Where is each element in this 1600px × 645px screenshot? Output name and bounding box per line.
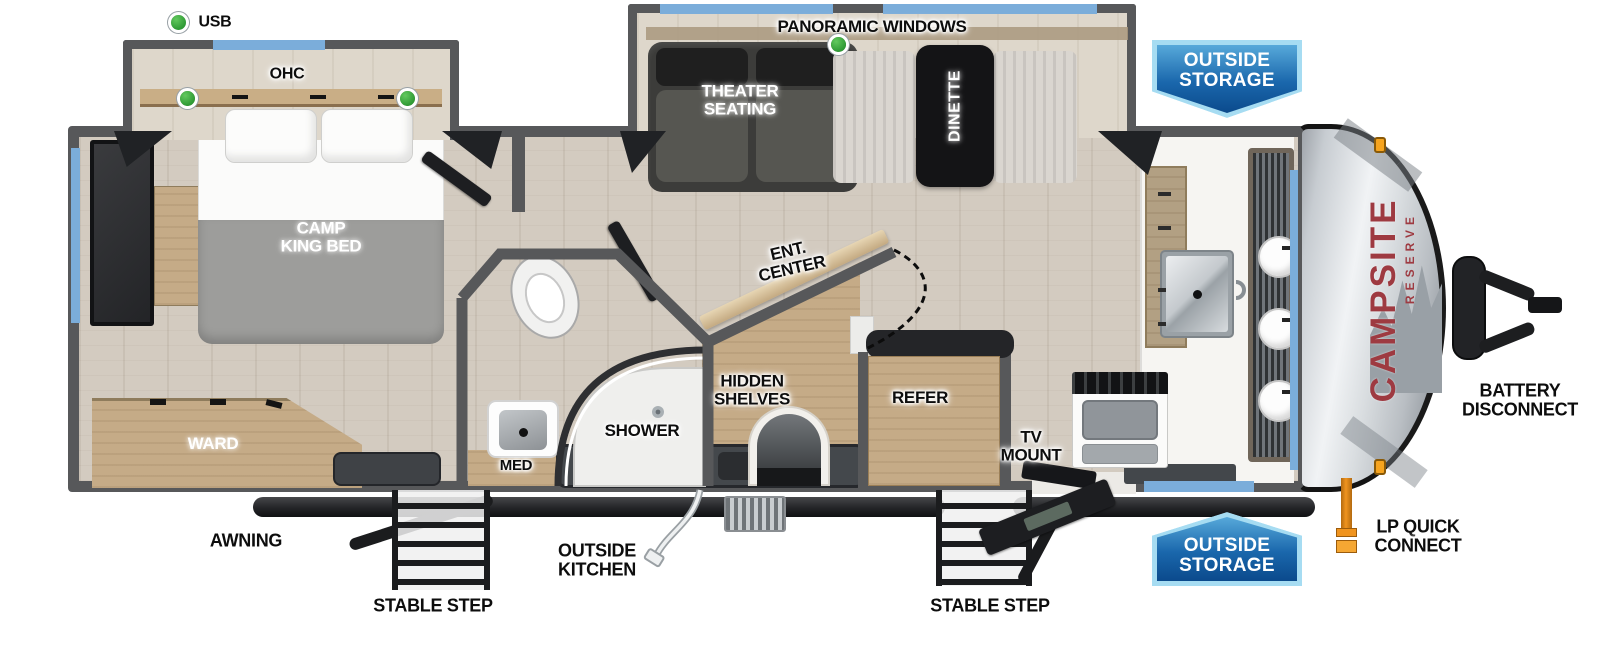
lp-fitting <box>1336 528 1357 537</box>
outside-kitchen-label: OUTSIDE KITCHEN <box>558 541 636 578</box>
underbody-vent <box>724 496 786 532</box>
stove-cooktop <box>1072 372 1168 394</box>
pantry-handle <box>1158 226 1171 230</box>
device-stand <box>232 95 248 99</box>
dinette-bench <box>993 51 1077 183</box>
wardrobe-hinge <box>210 399 226 405</box>
dinette-bench <box>833 51 915 183</box>
outside-kitchen-counter-small <box>333 452 441 486</box>
slide-window <box>213 40 325 50</box>
outside-storage-text: OUTSIDE STORAGE <box>1179 536 1275 576</box>
bedroom-cabinet <box>154 186 200 306</box>
bath-faucet <box>519 428 528 437</box>
refer-label: REFER <box>892 389 948 407</box>
slide-window <box>883 4 1097 14</box>
lp-fitting <box>1336 540 1357 553</box>
hitch-arm <box>1478 321 1537 355</box>
badge-fill: OUTSIDE STORAGE <box>1157 517 1297 581</box>
awning-rail <box>253 497 945 517</box>
outside-storage-badge-bottom: OUTSIDE STORAGE <box>1152 512 1302 586</box>
usb-led-ohc-left <box>180 91 195 106</box>
kitchen-sink-drain <box>1193 290 1202 299</box>
tv-mount-label: TV MOUNT <box>1001 428 1062 463</box>
dinette-label: DINETTE <box>948 70 965 142</box>
outside-kitchen-sink <box>580 452 700 480</box>
brand-series: RESERVE <box>1404 212 1416 304</box>
med-label: MED <box>500 458 532 474</box>
pillow <box>225 109 317 163</box>
outside-storage-badge-top: OUTSIDE STORAGE <box>1152 40 1302 118</box>
pantry-handle <box>1158 192 1171 196</box>
cap-graphic-swoosh <box>1334 118 1423 191</box>
ward-label: WARD <box>188 435 239 453</box>
hall-wall <box>512 128 525 212</box>
battery-disconnect-label: BATTERY DISCONNECT <box>1462 381 1578 418</box>
hidden-shelves-label: HIDDEN SHELVES <box>714 372 790 407</box>
device-stand <box>378 95 394 99</box>
panoramic-windows-led <box>831 37 846 52</box>
shower-label: SHOWER <box>605 422 680 440</box>
device-stand <box>310 95 326 99</box>
floorplan-diagram: CAMP KING BED WARD MED SHOWER HIDDEN SHE… <box>0 0 1600 645</box>
bedroom-mirror <box>90 140 154 326</box>
cap-marker-light <box>1374 459 1386 475</box>
refer-top <box>866 330 1014 358</box>
refer-wall-right <box>1000 348 1011 488</box>
cap-marker-light <box>1374 137 1386 153</box>
lp-quick-connect-label: LP QUICK CONNECT <box>1375 517 1462 554</box>
badge-fill: OUTSIDE STORAGE <box>1157 45 1297 113</box>
oven-door <box>1082 400 1158 440</box>
rear-window <box>71 148 80 323</box>
panoramic-windows-label: PANORAMIC WINDOWS <box>777 18 966 36</box>
wardrobe-hinge <box>150 399 166 405</box>
usb-led <box>171 15 186 30</box>
stable-step-left <box>392 490 490 590</box>
usb-led-ohc-right <box>400 91 415 106</box>
slide-window <box>660 4 833 14</box>
outside-storage-text: OUTSIDE STORAGE <box>1179 51 1275 91</box>
theater-seating-label: THEATER SEATING <box>702 82 779 117</box>
refer-wall-left <box>858 352 868 488</box>
stable-step-right-label: STABLE STEP <box>930 597 1049 616</box>
camp-king-bed-label: CAMP KING BED <box>281 219 362 254</box>
awning-label: AWNING <box>210 532 282 551</box>
bottom-window <box>1144 481 1254 492</box>
refer-body <box>868 356 1000 486</box>
cap-graphic-swoosh <box>1340 416 1427 488</box>
power-plug <box>644 549 664 567</box>
sofa-headrest <box>656 48 748 86</box>
pillow <box>321 109 413 163</box>
bedroom-slideout <box>123 40 459 140</box>
hitch-tongue <box>1528 297 1562 313</box>
brand-name: CAMPSITE <box>1366 198 1402 403</box>
fireplace-base <box>757 468 821 486</box>
hitch-arm <box>1478 268 1537 302</box>
oven-drawer <box>1082 444 1158 464</box>
usb-label: USB <box>199 15 232 32</box>
ohc-label: OHC <box>270 67 305 84</box>
stable-step-left-label: STABLE STEP <box>373 597 492 616</box>
